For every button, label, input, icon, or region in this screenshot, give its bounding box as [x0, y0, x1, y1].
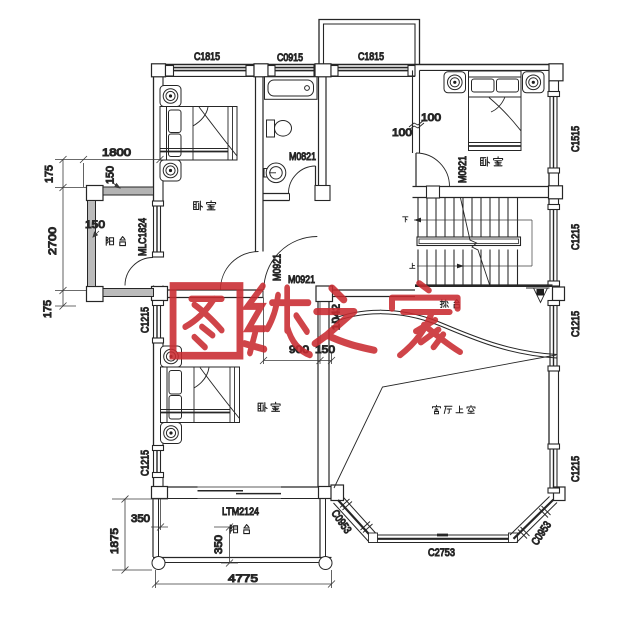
svg-text:C1515: C1515 — [570, 126, 582, 152]
svg-text:C1815: C1815 — [194, 51, 220, 63]
svg-text:C1815: C1815 — [358, 51, 384, 63]
svg-text:C0915: C0915 — [277, 52, 303, 64]
svg-text:4775: 4775 — [228, 573, 258, 585]
svg-text:C1215: C1215 — [570, 311, 582, 337]
svg-text:350: 350 — [131, 513, 150, 525]
svg-text:100: 100 — [392, 127, 412, 139]
svg-text:C1215: C1215 — [570, 224, 582, 250]
svg-text:MLC1824: MLC1824 — [137, 218, 149, 256]
svg-text:C1215: C1215 — [570, 456, 582, 482]
svg-text:150: 150 — [85, 219, 105, 231]
svg-text:100: 100 — [421, 112, 441, 124]
svg-text:M0921: M0921 — [457, 156, 469, 183]
svg-text:C2753: C2753 — [428, 547, 455, 559]
svg-text:M0921: M0921 — [272, 254, 284, 281]
svg-text:150: 150 — [105, 166, 117, 184]
svg-text:1875: 1875 — [109, 528, 121, 554]
svg-text:175: 175 — [42, 300, 54, 318]
svg-text:175: 175 — [44, 165, 56, 183]
svg-text:C1215: C1215 — [140, 450, 152, 476]
svg-text:M0921: M0921 — [288, 274, 315, 286]
svg-text:1800: 1800 — [102, 147, 131, 159]
svg-text:2700: 2700 — [47, 227, 59, 255]
svg-text:C1215: C1215 — [140, 307, 152, 333]
svg-text:M0821: M0821 — [289, 151, 316, 163]
svg-text:LTM2124: LTM2124 — [222, 506, 259, 518]
svg-text:350: 350 — [213, 535, 225, 554]
